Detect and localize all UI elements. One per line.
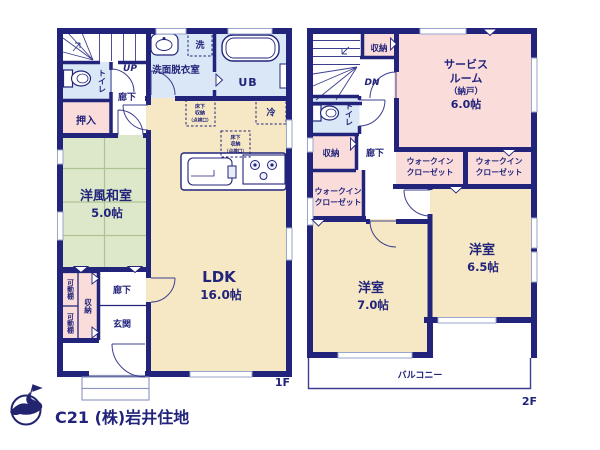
balcony-notch bbox=[433, 320, 531, 358]
label-hallway-lower: 廊下 bbox=[113, 284, 131, 296]
label-toilet-1f: トイレ bbox=[98, 69, 107, 93]
label-dn: DN bbox=[364, 78, 379, 88]
floorplan-svg: UP トイレ 廊下 押入 洗面脱衣室 洗 UB 冷 床下 収納 （点検口） 床下… bbox=[0, 0, 600, 450]
svg-text:クローゼット: クローゼット bbox=[407, 167, 454, 177]
floor2-plan: DN 収納 サービス ルーム （納戸） 6.0帖 トイレ 収納 廊下 ウォークイ… bbox=[307, 29, 537, 409]
label-storage-left: 収納 bbox=[322, 148, 339, 159]
svg-text:クローゼット: クローゼット bbox=[476, 167, 523, 177]
svg-text:床下: 床下 bbox=[230, 134, 240, 141]
company-logo-icon bbox=[10, 385, 42, 425]
label-washitsu: 洋風和室 bbox=[80, 188, 132, 204]
floorplan-image: UP トイレ 廊下 押入 洗面脱衣室 洗 UB 冷 床下 収納 （点検口） 床下… bbox=[0, 0, 600, 450]
svg-text:ウォークイン: ウォークイン bbox=[315, 186, 362, 196]
toilet-icon-1f bbox=[64, 70, 91, 87]
washbasin-icon bbox=[151, 34, 178, 55]
kitchen-faucet bbox=[228, 166, 236, 178]
label-movable-shelf-2: 可動棚 bbox=[66, 313, 74, 335]
svg-text:（点検口）: （点検口） bbox=[189, 117, 212, 124]
label-hallway-2f: 廊下 bbox=[366, 147, 384, 159]
svg-text:クローゼット: クローゼット bbox=[315, 197, 362, 207]
svg-text:ルーム: ルーム bbox=[450, 72, 483, 85]
label-unit-bath: UB bbox=[238, 76, 257, 89]
svg-text:ウォークイン: ウォークイン bbox=[476, 156, 523, 166]
svg-text:（納戸）: （納戸） bbox=[449, 86, 483, 97]
label-laundry: 洗 bbox=[195, 39, 204, 51]
room-ldk bbox=[146, 98, 289, 374]
label-bedroom7: 洋室 bbox=[358, 280, 384, 296]
label-hallway-upper: 廊下 bbox=[118, 91, 136, 103]
label-oshiire: 押入 bbox=[76, 114, 96, 127]
floor2-label: 2F bbox=[522, 395, 537, 408]
shower-panel bbox=[280, 64, 287, 88]
floor1-plan: UP トイレ 廊下 押入 洗面脱衣室 洗 UB 冷 床下 収納 （点検口） 床下… bbox=[57, 28, 292, 400]
label-fridge: 冷 bbox=[266, 107, 275, 119]
label-balcony: バルコニー bbox=[398, 370, 443, 381]
svg-text:6.0帖: 6.0帖 bbox=[451, 97, 482, 111]
toilet-icon-2f bbox=[313, 105, 339, 121]
label-toilet-2f: トイレ bbox=[345, 102, 354, 126]
label-entrance: 玄関 bbox=[113, 318, 131, 330]
label-ldk: LDK bbox=[202, 268, 237, 286]
label-storage-strip: 収納 bbox=[83, 297, 92, 315]
svg-text:サービス: サービス bbox=[444, 57, 488, 71]
kitchen-sink bbox=[188, 158, 232, 185]
label-bedroom7-size: 7.0帖 bbox=[357, 298, 389, 312]
label-washitsu-size: 5.0帖 bbox=[91, 206, 123, 220]
label-bedroom65-size: 6.5帖 bbox=[467, 260, 499, 274]
entrance-recess bbox=[89, 343, 145, 376]
svg-text:ウォークイン: ウォークイン bbox=[407, 156, 454, 166]
svg-text:（点検口）: （点検口） bbox=[224, 148, 247, 155]
floor1-label: 1F bbox=[275, 376, 290, 389]
kitchen-counter bbox=[181, 153, 286, 190]
svg-text:収納: 収納 bbox=[230, 141, 240, 148]
label-washroom: 洗面脱衣室 bbox=[152, 64, 200, 76]
label-bedroom65: 洋室 bbox=[469, 242, 495, 258]
label-up: UP bbox=[123, 64, 137, 74]
svg-text:収納: 収納 bbox=[195, 110, 205, 117]
porch-step-1 bbox=[82, 377, 149, 389]
porch-step-2 bbox=[82, 389, 149, 401]
label-movable-shelf-1: 可動棚 bbox=[66, 279, 74, 301]
svg-text:床下: 床下 bbox=[195, 103, 205, 110]
company-name: C21 (株)岩井住地 bbox=[55, 408, 189, 427]
label-ldk-size: 16.0帖 bbox=[200, 287, 242, 302]
label-storage-top: 収納 bbox=[370, 43, 387, 54]
